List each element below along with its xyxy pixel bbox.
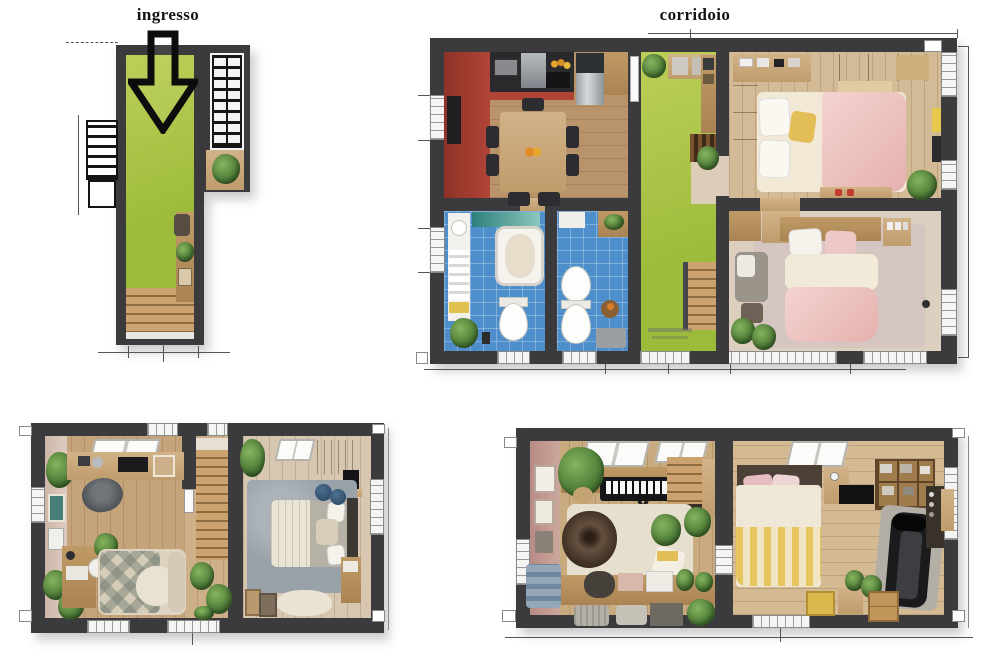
books-on-bench <box>618 573 643 591</box>
bed-blanket <box>271 500 313 567</box>
bedroom-rug <box>247 480 357 593</box>
white-box <box>646 571 673 592</box>
bed2-headboard <box>780 217 881 241</box>
kitchen-floor <box>444 52 628 198</box>
kitchen-counter-front <box>490 92 574 100</box>
corner-marker <box>504 437 517 448</box>
skylight <box>786 441 849 467</box>
tv-flat <box>839 485 874 504</box>
dimension-tick <box>418 95 430 96</box>
treadmill-console <box>891 514 926 533</box>
plant <box>194 606 214 620</box>
entry-annex-wall <box>204 45 250 192</box>
bed2-pillow-pink <box>824 230 856 258</box>
dimension-tick <box>605 360 606 374</box>
planter-plant <box>212 154 240 184</box>
stair-platform <box>702 459 715 517</box>
bench-cushion <box>672 57 688 75</box>
kitchen-red-cabinet <box>444 52 490 198</box>
musicroom-rug <box>567 504 693 590</box>
sofa-diamond-plaid <box>100 551 160 613</box>
shelf-jar <box>887 222 893 230</box>
leaning-frame <box>245 589 261 616</box>
entry-stair-landing <box>126 332 194 339</box>
dimension-tick <box>957 29 958 38</box>
bed1-pillow <box>758 139 790 178</box>
stair-stringer <box>683 262 688 330</box>
shelf-jar <box>895 222 901 230</box>
bathroom2-plant <box>604 214 624 230</box>
bedroom-desk <box>341 557 361 603</box>
bathroom1-shelf <box>472 212 540 227</box>
console-plant <box>176 242 194 262</box>
rack-item <box>929 492 934 497</box>
corner-marker <box>416 352 428 364</box>
window <box>944 467 958 540</box>
studio-floor <box>45 436 184 618</box>
corner-marker <box>372 424 385 434</box>
kitchen-counter <box>490 52 574 92</box>
window <box>430 95 445 140</box>
dimension-line <box>505 637 973 638</box>
plant <box>845 570 864 591</box>
bedroom2-cabinet <box>729 211 761 241</box>
cushion-stack <box>526 564 561 608</box>
basket <box>616 605 647 625</box>
dining-chair <box>538 192 560 206</box>
external-stair <box>86 120 118 180</box>
musicroom-shelf <box>561 467 702 493</box>
wood-crates <box>868 591 899 622</box>
gymbed-striped-blanket <box>736 527 821 586</box>
musicroom-floor <box>530 441 715 615</box>
bedroom1-plant <box>907 170 937 200</box>
writing-desk <box>62 546 96 608</box>
bedroom2-floor <box>729 211 941 351</box>
desk-item <box>774 59 784 67</box>
bed-pillow <box>326 544 346 565</box>
dining-chair <box>486 126 499 148</box>
gymbed-pillow-pink <box>743 474 774 502</box>
dining-chair <box>522 98 544 111</box>
fridge-top <box>576 53 604 73</box>
corridor-stairs <box>688 262 716 330</box>
corner-marker <box>952 428 965 438</box>
dimension-line <box>968 436 969 628</box>
dimension-tick <box>850 360 851 374</box>
floor-cushion-yellow <box>657 551 678 561</box>
wall-shelf <box>941 489 954 531</box>
wall-picture <box>48 494 65 522</box>
kitchen-bath-wall <box>430 198 641 211</box>
desk-papers <box>343 561 358 572</box>
bed1-duvet <box>822 92 906 192</box>
gymbed-headboard <box>737 465 822 488</box>
cubby-contents <box>903 487 914 495</box>
corner-marker <box>502 610 516 622</box>
dining-chair <box>566 126 579 148</box>
corner-marker <box>19 610 32 622</box>
shelf-item <box>78 456 90 466</box>
corridor-console <box>701 55 716 133</box>
bath-mat <box>596 328 626 348</box>
dimension-tick <box>163 344 164 362</box>
dark-pouf <box>584 571 615 598</box>
lowerright-outer-wall <box>516 428 958 628</box>
cooker-hood <box>521 53 546 88</box>
plant <box>861 575 882 598</box>
plant <box>240 439 265 477</box>
staircase <box>196 450 228 560</box>
basket <box>574 605 609 626</box>
bed-mattress <box>310 500 347 567</box>
stair-railing <box>690 134 716 162</box>
leaning-frame <box>259 593 277 617</box>
corner-marker <box>952 610 965 622</box>
desk-red-item <box>847 189 854 196</box>
stairwell-floor <box>210 53 244 150</box>
bathroom-door-threshold <box>520 198 546 211</box>
window <box>497 351 530 364</box>
corridor-bench <box>668 54 712 79</box>
kitchen-door <box>630 56 639 102</box>
bedroom-floor <box>243 436 371 618</box>
cubby-contents <box>880 464 892 473</box>
cube-shelf <box>875 459 935 510</box>
bed1-pillow <box>758 97 791 137</box>
dimension-line <box>388 428 389 630</box>
bedside-table <box>824 467 849 504</box>
bathroom2-floor <box>557 211 628 351</box>
dining-chair <box>486 154 499 176</box>
corner-marker <box>924 40 942 52</box>
bathtub <box>495 226 544 286</box>
sofa-base <box>98 549 186 615</box>
bedroom-divider-wall <box>729 198 957 211</box>
studio-rug <box>79 477 157 541</box>
shelf-frame <box>153 455 175 477</box>
console-item <box>703 58 714 70</box>
dimension-tick <box>730 360 731 374</box>
radiator <box>932 108 941 132</box>
gym-mat <box>873 504 946 611</box>
window <box>147 423 178 436</box>
desk-item <box>757 58 769 67</box>
stair-landing <box>196 438 228 450</box>
bedroom1-desk <box>733 54 811 82</box>
bedside-cabinet <box>733 84 758 166</box>
dimension-line <box>66 42 118 43</box>
entrance-arrow-icon <box>128 30 198 134</box>
bathroom1-floor <box>444 211 545 351</box>
window <box>516 539 530 585</box>
corridor-bush <box>642 54 666 78</box>
dimension-tick <box>418 272 430 273</box>
console-item <box>703 74 714 84</box>
toilet <box>561 304 591 344</box>
yellow-crate <box>806 591 835 616</box>
plant-pot <box>573 487 593 504</box>
desk-red-item <box>835 189 842 196</box>
corridor-floor <box>641 52 716 351</box>
bedroom1-low-desk <box>820 187 892 198</box>
entry-outer-wall <box>116 45 204 345</box>
dimension-tick <box>780 622 781 642</box>
kettle <box>92 457 103 468</box>
window <box>430 227 445 273</box>
window <box>370 479 384 535</box>
dimension-tick <box>958 46 968 47</box>
wall-picture <box>534 499 554 525</box>
corridor-plant <box>697 146 719 170</box>
bean-bag <box>562 511 617 568</box>
bed1-yellow-pillow <box>788 110 817 143</box>
side-table <box>838 587 863 614</box>
wall-coat <box>932 136 941 162</box>
console-frame <box>178 268 192 286</box>
watermark <box>648 328 692 332</box>
gymbed-rug <box>725 504 843 614</box>
storage-bench <box>556 575 715 605</box>
bed2-pillow <box>788 228 823 257</box>
wood-stool <box>601 300 619 318</box>
bed-headboard <box>347 498 358 568</box>
cubby-contents <box>882 486 894 495</box>
main-outer-wall <box>430 38 957 364</box>
bedroom2-plant <box>731 318 755 344</box>
corner-shelf <box>598 211 628 237</box>
bed-pillow <box>326 501 346 522</box>
lowerleft-outer-wall <box>31 423 384 633</box>
monstera-plant <box>558 447 604 497</box>
bench-cushion <box>692 57 706 75</box>
vanity-counter <box>448 213 470 321</box>
skylight <box>654 441 708 463</box>
blue-pouf <box>315 484 332 501</box>
dimension-line <box>78 115 79 215</box>
stair-area-floor <box>184 436 243 618</box>
floorplan-main-level: corridoio <box>0 0 989 660</box>
sofa-cushion <box>133 563 179 609</box>
dimension-line <box>968 46 969 358</box>
doorway-opening <box>715 545 733 575</box>
dining-chair <box>566 154 579 176</box>
floor-plans-canvas: ingresso corridoio <box>0 0 989 660</box>
planter-shelf <box>206 150 244 190</box>
kitchen-corridor-wall <box>628 38 641 205</box>
corridor-bedroom-wall <box>716 38 729 364</box>
radio <box>118 457 148 472</box>
plant <box>58 592 84 620</box>
bathroom2-shelf <box>559 212 585 228</box>
window <box>752 615 810 628</box>
stair-enclosure-wall <box>182 423 196 489</box>
plant <box>46 452 74 488</box>
window <box>941 289 957 336</box>
storage-cubes <box>650 603 683 626</box>
floorplan-entry-level: ingresso <box>0 0 989 660</box>
corner-marker <box>372 610 385 622</box>
dimension-tick <box>128 346 129 358</box>
bathtub-basin <box>505 234 535 278</box>
bench-seat <box>735 252 768 302</box>
waste-bin <box>482 332 490 344</box>
fridge <box>576 53 604 105</box>
toilet-tank <box>499 297 528 307</box>
dining-chair <box>508 192 530 206</box>
dimension-tick <box>192 633 193 645</box>
floor-cushion <box>651 546 686 581</box>
window <box>941 160 957 190</box>
desk-item <box>788 58 800 67</box>
gymbed-pillow-yellow <box>756 491 790 518</box>
shelf-jar <box>903 222 908 230</box>
bedroom2-rug <box>754 224 926 348</box>
orange-on-stool <box>607 303 614 310</box>
red-book <box>584 470 596 486</box>
plant <box>684 507 711 537</box>
kitchen-wood-counter <box>604 52 628 95</box>
plant <box>43 570 69 600</box>
kitchen-shelf-black <box>447 96 461 144</box>
bathroom1-plant <box>450 318 478 348</box>
towel-shelf <box>449 250 469 300</box>
bathroom-divider-wall <box>545 198 557 364</box>
bed2-sheet-fold <box>785 254 878 290</box>
window <box>640 351 690 364</box>
plant <box>94 533 118 559</box>
skylight <box>581 441 650 467</box>
bag-on-console <box>174 214 190 236</box>
treadmill-belt <box>895 530 923 600</box>
accent-wall <box>45 436 67 618</box>
window <box>562 351 597 364</box>
window <box>941 52 957 97</box>
stair-door <box>184 489 194 513</box>
console-table <box>176 212 194 302</box>
window <box>722 351 837 364</box>
bidet <box>561 266 591 302</box>
rack-item <box>929 512 934 517</box>
bed2-duvet <box>785 287 878 342</box>
window <box>207 423 228 436</box>
dining-table <box>500 112 566 192</box>
cubby-contents <box>900 464 912 473</box>
bed1-base <box>757 92 906 192</box>
fruit-basket <box>549 57 571 71</box>
window <box>863 351 927 364</box>
skylight <box>89 439 160 461</box>
bedroom2-plant <box>752 324 776 350</box>
keyboard-piano <box>600 477 687 501</box>
bedroom1-floor <box>729 52 941 198</box>
corridoio-label: corridoio <box>640 6 750 25</box>
floorplan-lower-right <box>0 0 989 660</box>
bench-planter <box>695 572 713 592</box>
bedroom-wardrobe <box>317 440 354 474</box>
window <box>87 620 130 633</box>
stairwell-railing <box>212 55 242 148</box>
wardrobe <box>811 54 930 81</box>
rack-item <box>929 502 934 507</box>
tv-shelf <box>336 489 362 497</box>
tv-screen <box>343 470 359 490</box>
corner-marker <box>19 426 32 436</box>
clothes-rack <box>926 486 944 548</box>
keyboard-stand <box>614 501 672 517</box>
desk-chair <box>88 558 108 578</box>
dimension-tick <box>690 29 691 38</box>
keyboard-keys <box>604 481 683 494</box>
desk-papers <box>66 566 88 580</box>
entry-stairs <box>126 288 194 332</box>
bedroom2-door-threshold <box>760 198 800 211</box>
treadmill <box>884 511 934 608</box>
bench-planter <box>676 569 694 591</box>
dimension-line <box>648 33 958 34</box>
desk-item <box>739 58 753 67</box>
skylight <box>274 439 315 461</box>
bedroom1-door-landing <box>716 156 729 196</box>
wall-picture <box>534 465 556 493</box>
desk-lamp <box>66 551 75 560</box>
alarm-clock <box>830 472 839 481</box>
staircase <box>667 457 707 505</box>
stair-landing <box>691 162 716 204</box>
sink <box>451 220 467 236</box>
toilet <box>499 303 528 341</box>
dimension-tick <box>418 228 430 229</box>
wall-picture <box>48 528 64 550</box>
dimension-tick <box>418 140 430 141</box>
plant <box>190 562 214 590</box>
bench-throw <box>737 255 755 277</box>
stove <box>546 72 570 88</box>
gymbed-body <box>736 485 821 587</box>
window <box>167 620 220 633</box>
plant <box>206 584 232 614</box>
plant <box>651 514 681 546</box>
entry-corridor-floor <box>126 55 194 288</box>
wardrobe-open-shelf <box>838 81 892 93</box>
dimension-tick <box>198 346 199 358</box>
dimension-line <box>98 352 230 353</box>
wall-picture <box>535 531 553 553</box>
blue-pouf <box>330 489 346 505</box>
floorplan-lower-left <box>0 0 989 660</box>
bedroomgym-floor <box>733 441 944 615</box>
accent-wall-pink <box>530 441 560 615</box>
floor-mat <box>277 590 332 616</box>
wardrobe-door <box>896 55 929 80</box>
floor-lamp <box>922 300 930 308</box>
microwave <box>494 59 518 76</box>
watermark <box>652 336 688 339</box>
window <box>31 487 45 523</box>
dimension-line <box>424 369 906 370</box>
external-stair-landing <box>88 180 116 208</box>
room-divider-wall <box>715 428 733 628</box>
bed-pillow-beige <box>316 519 338 545</box>
armchair <box>79 474 126 516</box>
room-divider-wall <box>228 423 243 633</box>
ingresso-label: ingresso <box>118 6 218 25</box>
sofa-armrest <box>168 552 185 612</box>
dimension-tick <box>668 360 669 374</box>
yellow-towel <box>449 302 469 313</box>
toilet-tank <box>561 300 591 309</box>
dimension-tick <box>958 357 968 358</box>
